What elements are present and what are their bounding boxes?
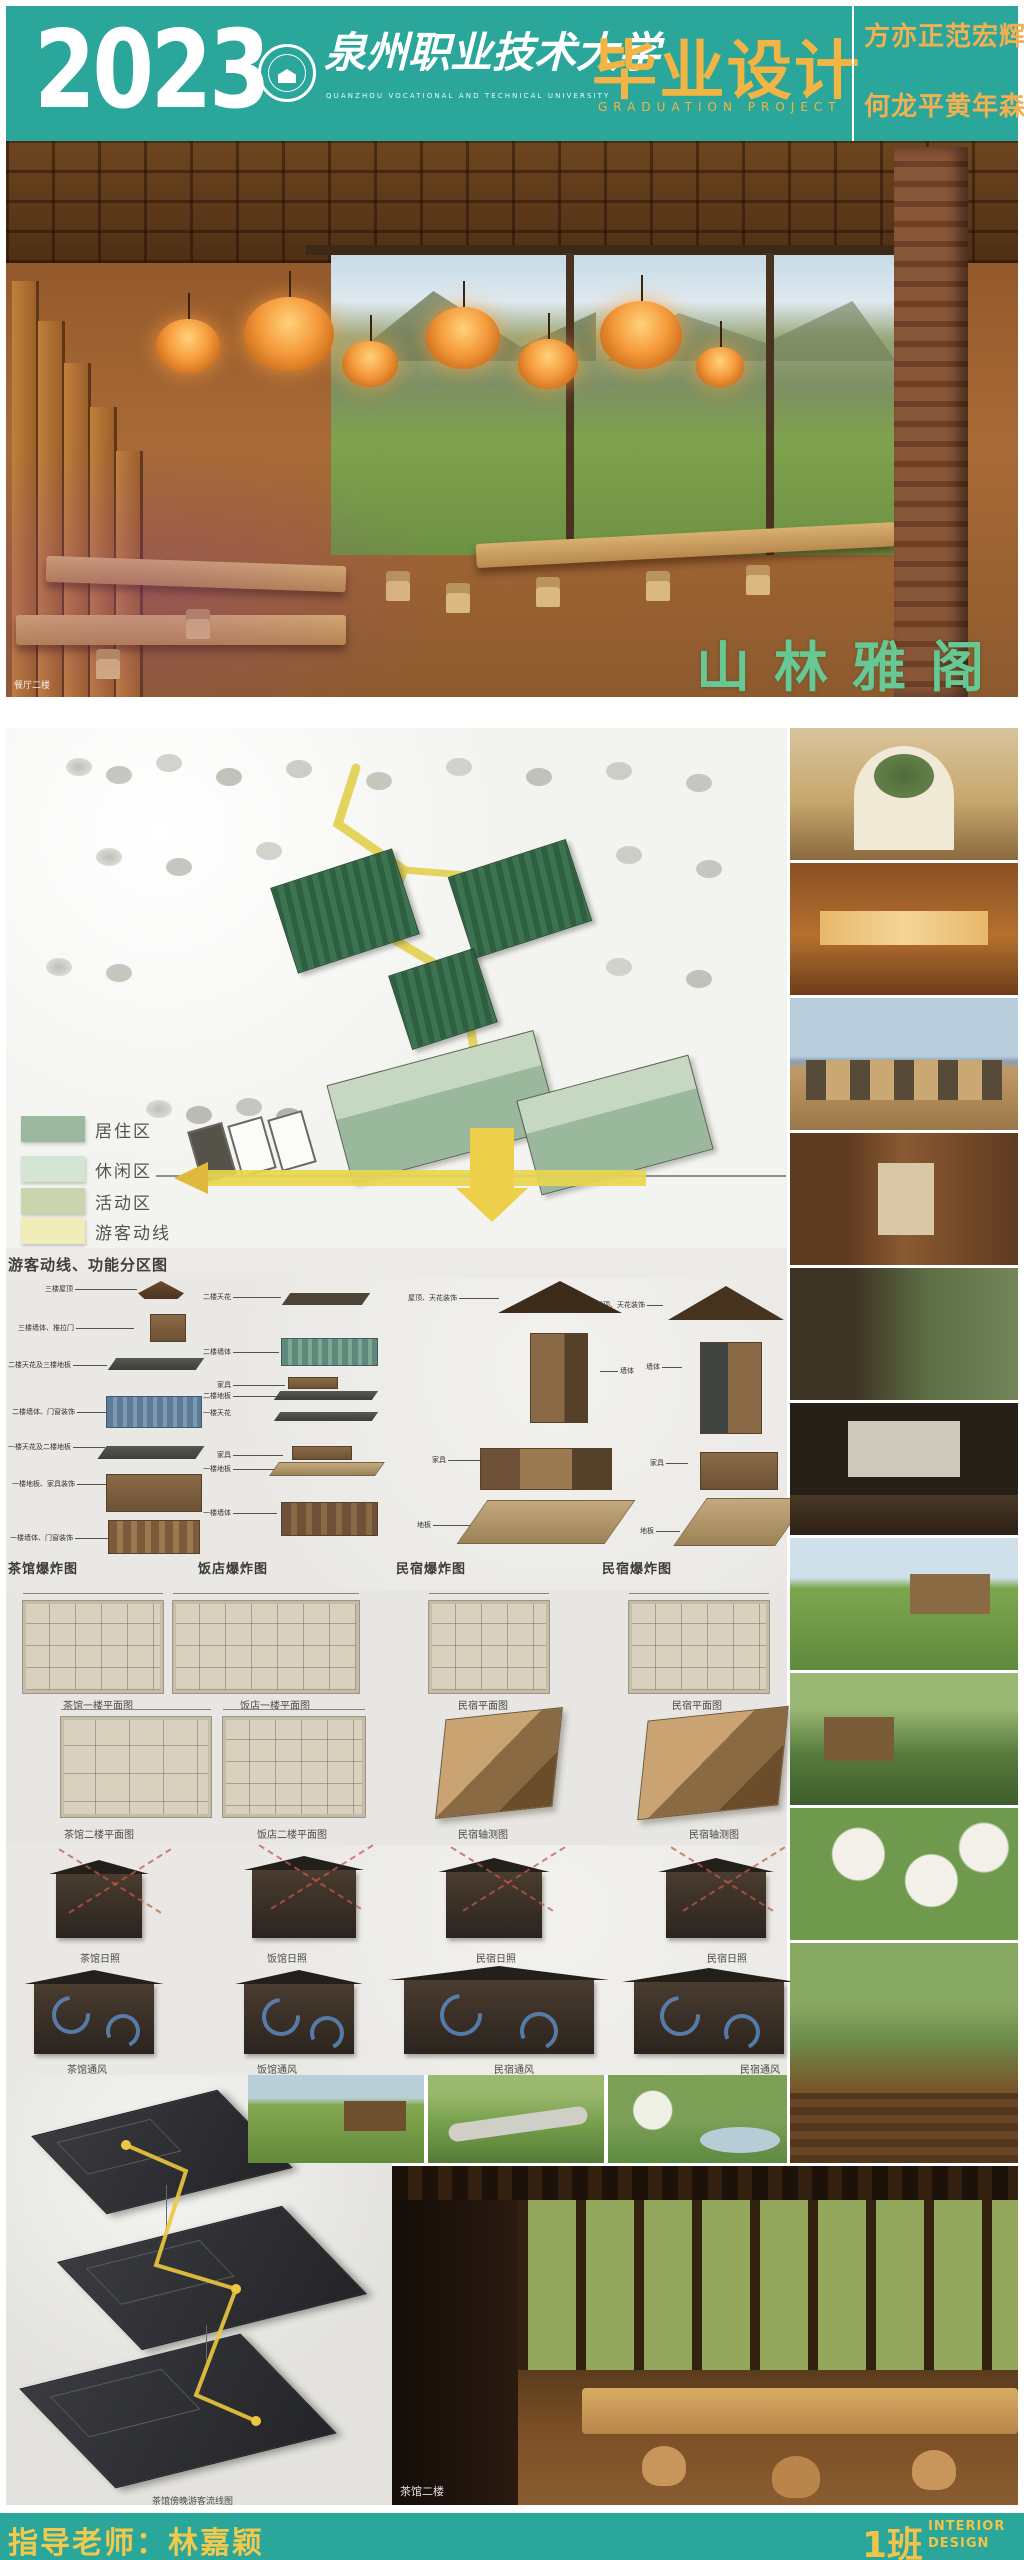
long-table: [582, 2388, 1018, 2434]
sun-caption: 饭馆日照: [267, 1950, 307, 1965]
wind-caption: 饭馆通风: [257, 2061, 297, 2076]
plan-caption: 民宿平面图: [672, 1697, 722, 1712]
sun-analysis-house: [446, 1872, 542, 1938]
stone-pillar: [894, 147, 968, 697]
exploded-label: 三楼墙体、推拉门: [18, 1323, 136, 1333]
lantern: [342, 341, 398, 387]
bottom-photo-lawn-cabin: [248, 2075, 424, 2163]
sun-analysis-house: [252, 1870, 356, 1938]
university-logo-icon: [258, 44, 316, 102]
plan-caption: 民宿轴测图: [689, 1826, 739, 1841]
projector-screen: [848, 1421, 960, 1477]
floor-plan-thumb: [222, 1716, 366, 1818]
stump-stool: [772, 2456, 820, 2498]
lantern: [696, 347, 744, 387]
exploded-label: 三楼屋顶: [45, 1284, 139, 1294]
pavilion: [824, 1717, 894, 1761]
sidebar-photo-warm-interior: [790, 863, 1018, 995]
graduation-poster: 2023 泉州职业技术大学 QUANZHOU VOCATIONAL AND TE…: [0, 0, 1024, 2560]
plan-caption: 民宿平面图: [458, 1697, 508, 1712]
exploded-label: 屋顶、天花装饰: [596, 1300, 665, 1310]
model-walls: [281, 1502, 378, 1536]
axon-room-thumb: [637, 1706, 789, 1820]
model-floor: [269, 1462, 385, 1476]
axon-room-thumb: [435, 1707, 563, 1819]
bottom-photo-path: [428, 2075, 604, 2163]
legend-label: 活动区: [95, 1189, 152, 1214]
ceiling-slats: [392, 2166, 1018, 2200]
department-text: INTERIOR DESIGN: [928, 2519, 1005, 2553]
sidebar-photo-media-room: [790, 1403, 1018, 1535]
university-name-en: QUANZHOU VOCATIONAL AND TECHNICAL UNIVER…: [326, 92, 610, 100]
sidebar-photo-exterior: [790, 998, 1018, 1130]
sidebar-photo-tearoom: [790, 728, 1018, 860]
year-text: 2023: [34, 14, 267, 127]
exploded-label: 一楼地板: [203, 1464, 277, 1474]
students-line2: 何龙平黄年森: [864, 86, 1024, 123]
legend-row: 休闲区: [21, 1156, 152, 1182]
model-slab: [97, 1446, 204, 1459]
wind-analysis-house: [404, 1980, 594, 2054]
sidebar-photo-green-wall: [790, 1268, 1018, 1400]
model-floor: [457, 1500, 636, 1544]
dept-line2: DESIGN: [928, 2536, 1005, 2553]
exploded-caption: 民宿爆炸图: [396, 1558, 466, 1577]
students-line1: 方亦正范宏辉: [864, 16, 1024, 53]
poster-title-cn: 毕业设计: [592, 20, 861, 112]
wind-analysis-house: [634, 1982, 784, 2054]
dept-line1: INTERIOR: [928, 2519, 1005, 2536]
university-name-cn: 泉州职业技术大学: [324, 28, 594, 78]
exploded-label: 二楼墙体、门窗装饰: [12, 1407, 111, 1417]
model-glass-wall: [106, 1396, 202, 1428]
exploded-label: 一楼墙体: [203, 1508, 279, 1518]
model-furniture: [480, 1448, 612, 1490]
walking-path: [447, 2105, 588, 2142]
floor-plan-thumb: [628, 1600, 770, 1694]
legend-swatch-activity: [21, 1188, 85, 1214]
sun-caption: 民宿日照: [707, 1950, 747, 1965]
model-slab: [274, 1391, 378, 1400]
wind-caption: 茶馆通风: [67, 2061, 107, 2076]
exploded-label: 二楼天花: [203, 1292, 283, 1302]
chair: [746, 565, 770, 595]
cabin: [344, 2101, 406, 2131]
deck-planks: [790, 2093, 1018, 2163]
hero-render-photo: 山林雅阁 餐厅二楼: [6, 141, 1018, 697]
lit-window-band: [820, 911, 988, 945]
hero-photo-label: 餐厅二楼: [14, 678, 50, 691]
model-furniture: [288, 1377, 338, 1389]
stump-stool: [912, 2450, 956, 2490]
footer-bar: 指导老师：林嘉颖 1班 INTERIOR DESIGN: [0, 2513, 1024, 2560]
building-facades: [806, 1060, 1002, 1100]
exploded-caption: 民宿爆炸图: [602, 1558, 672, 1577]
big-photo-label: 茶馆二楼: [400, 2483, 444, 2499]
sidebar-photo-lawn: [790, 1538, 1018, 1670]
header-bar: 2023 泉州职业技术大学 QUANZHOU VOCATIONAL AND TE…: [6, 6, 1018, 141]
sidebar-photo-bedroom: [790, 1133, 1018, 1265]
header-divider: [852, 6, 854, 141]
chair: [646, 571, 670, 601]
sun-analysis-house: [56, 1874, 142, 1938]
exploded-label: 一楼天花: [203, 1408, 231, 1418]
cabin: [910, 1574, 990, 1614]
route-band: [206, 1170, 646, 1186]
sun-caption: 茶馆日照: [80, 1950, 120, 1965]
floor-plan-thumb: [22, 1600, 164, 1694]
exploded-label: 墙体: [598, 1366, 634, 1376]
exploded-label: 屋顶、天花装饰: [408, 1293, 501, 1303]
exploded-label: 墙体: [646, 1362, 684, 1372]
site-plan-diagram: 居住区 休闲区 活动区 游客动线: [6, 728, 787, 1248]
model-wall-box: [530, 1333, 588, 1423]
model-furniture: [700, 1452, 778, 1490]
exploded-label: 家具: [650, 1458, 690, 1468]
class-number: 1班: [862, 2516, 923, 2560]
exploded-label: 二楼墙体: [203, 1347, 281, 1357]
lattice-windows: [518, 2200, 1018, 2370]
model-slab: [282, 1293, 370, 1305]
exploded-label: 家具: [217, 1380, 287, 1390]
exploded-label: 地板: [640, 1526, 682, 1536]
plan-caption: 民宿轴测图: [458, 1826, 508, 1841]
exploded-caption: 茶馆爆炸图: [8, 1558, 78, 1577]
advisor-text: 指导老师：林嘉颖: [8, 2518, 264, 2560]
model-slab: [108, 1358, 204, 1370]
window-mullion: [566, 253, 574, 555]
legend-swatch-route: [21, 1218, 85, 1244]
flow-caption: 茶馆傍晚游客流线图: [152, 2494, 233, 2507]
sun-caption: 民宿日照: [476, 1950, 516, 1965]
window-mullion: [766, 253, 774, 555]
exploded-label: 一楼天花及二楼地板: [8, 1442, 107, 1452]
seating: [790, 1495, 1018, 1535]
legend-swatch-leisure: [21, 1156, 85, 1182]
model-wall-box: [700, 1342, 762, 1434]
entry-arrow-shaft: [470, 1128, 514, 1190]
model-wall: [150, 1314, 186, 1342]
exploded-label: 家具: [217, 1450, 285, 1460]
chair: [446, 583, 470, 613]
project-title-calligraphy: 山林雅阁: [696, 623, 1008, 697]
model-interior: [106, 1474, 202, 1512]
lantern: [518, 339, 578, 389]
model-slab: [274, 1412, 378, 1421]
big-photo-teahouse: 茶馆二楼: [392, 2166, 1018, 2505]
floor-plan-thumb: [60, 1716, 212, 1818]
legend-row: 活动区: [21, 1188, 152, 1214]
lantern: [244, 297, 334, 371]
bottom-photo-pond: [608, 2075, 787, 2163]
sidebar-photo-garden: [790, 1673, 1018, 1805]
exploded-label: 二楼天花及三楼地板: [8, 1360, 109, 1370]
lantern: [600, 301, 682, 369]
sidebar-photo-blossoms: [790, 1808, 1018, 1940]
poster-title-en: GRADUATION PROJECT: [598, 100, 842, 114]
model-walls: [108, 1520, 200, 1554]
legend-swatch-residential: [21, 1116, 85, 1142]
entry-arrow-head: [456, 1188, 528, 1222]
legend-label: 休闲区: [95, 1157, 152, 1182]
legend-row: 游客动线: [21, 1218, 171, 1244]
sidebar-photo-deck: [790, 1943, 1018, 2163]
exploded-label: 一楼地板、家具装饰: [12, 1479, 109, 1489]
lantern: [426, 307, 500, 369]
floor-plan-thumb: [172, 1600, 360, 1694]
roof-beam: [306, 245, 926, 255]
plan-caption: 饭店二楼平面图: [257, 1826, 327, 1841]
exploded-label: 二楼地板: [203, 1391, 279, 1401]
legend-label: 游客动线: [95, 1219, 171, 1244]
legend-label: 居住区: [95, 1117, 152, 1142]
model-furniture: [292, 1446, 352, 1460]
pond: [700, 2127, 780, 2153]
stump-stool: [642, 2446, 686, 2486]
bright-window: [878, 1163, 934, 1235]
lantern: [156, 319, 220, 373]
purple-light-tint: [6, 441, 446, 697]
sun-analysis-house: [666, 1872, 766, 1938]
chair: [536, 577, 560, 607]
legend-row: 居住区: [21, 1116, 152, 1142]
exploded-label: 一楼墙体、门窗装饰: [10, 1533, 111, 1543]
plan-caption: 茶馆二楼平面图: [64, 1826, 134, 1841]
route-arrow-left: [174, 1162, 208, 1194]
exploded-caption: 饭店爆炸图: [198, 1558, 268, 1577]
dark-column: [392, 2166, 518, 2505]
model-wall: [281, 1338, 378, 1366]
wind-caption: 民宿通风: [740, 2061, 780, 2076]
siteplan-caption: 游客动线、功能分区图: [8, 1254, 168, 1275]
floor-plan-thumb: [428, 1600, 550, 1694]
tree-mural: [874, 754, 934, 798]
wind-caption: 民宿通风: [494, 2061, 534, 2076]
